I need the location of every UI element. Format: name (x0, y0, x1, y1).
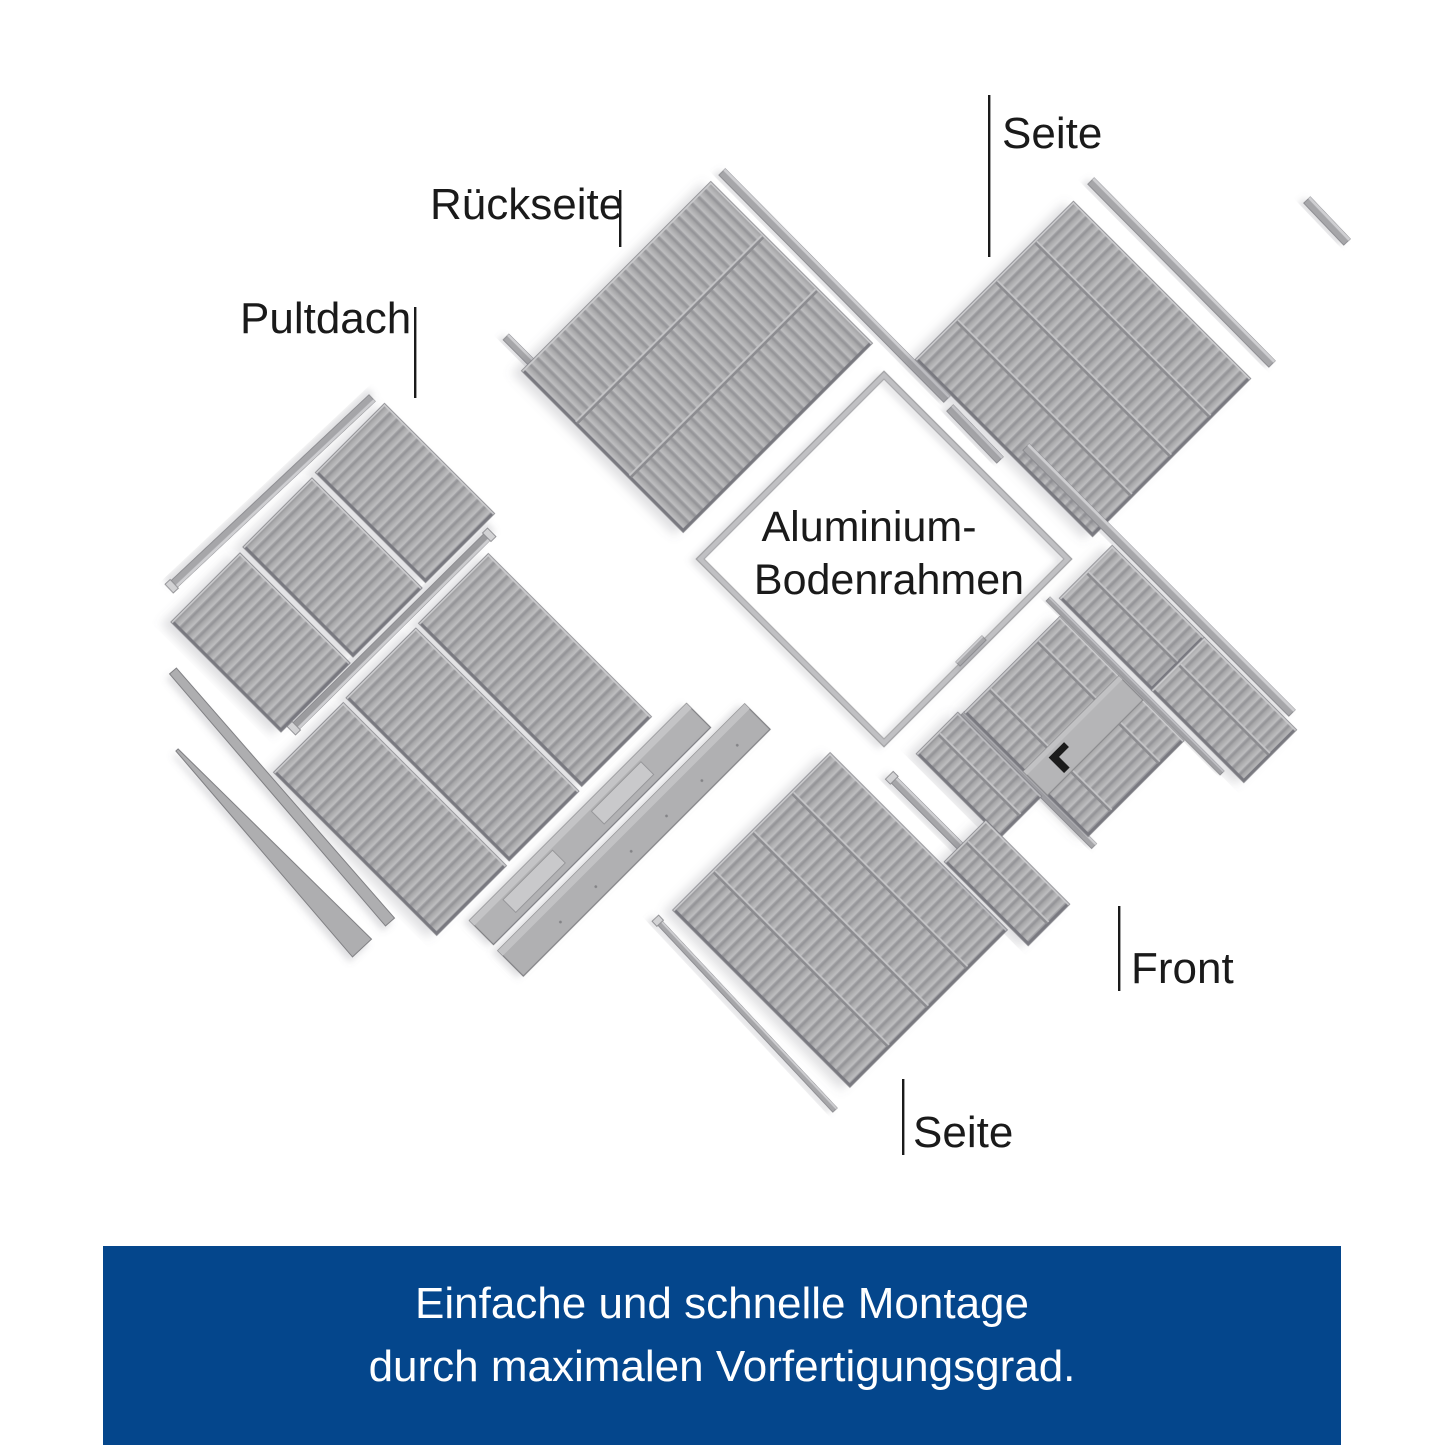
svg-text:Bodenrahmen: Bodenrahmen (754, 556, 1024, 604)
svg-text:Rückseite: Rückseite (430, 180, 623, 229)
svg-text:Pultdach: Pultdach (240, 294, 411, 343)
svg-text:Einfache und schnelle Montage: Einfache und schnelle Montage (415, 1279, 1029, 1328)
svg-text:durch maximalen Vorfertigungsg: durch maximalen Vorfertigungsgrad. (369, 1342, 1076, 1391)
svg-text:Seite: Seite (1002, 109, 1102, 158)
svg-text:Seite: Seite (913, 1108, 1013, 1157)
svg-text:Aluminium-: Aluminium- (761, 503, 976, 551)
svg-text:Front: Front (1131, 944, 1234, 993)
